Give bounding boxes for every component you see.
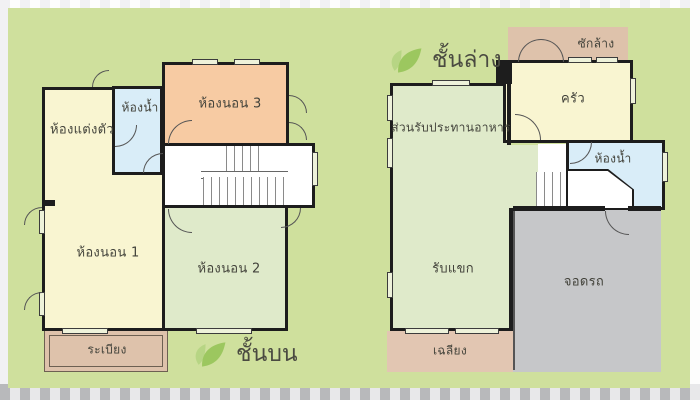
window — [234, 59, 260, 65]
room-label-bedroom2: ห้องนอน 2 — [197, 258, 260, 279]
floor-title-lower: ชั้นล่าง — [386, 42, 502, 78]
room-label-laundry: ซักล้าง — [578, 35, 615, 54]
room-label-porch: เฉลียง — [433, 342, 467, 361]
window — [455, 328, 499, 334]
room-label-bedroom3: ห้องนอน 3 — [198, 93, 261, 114]
room-label-carpark: จอดรถ — [564, 271, 604, 292]
room-label-bedroom1: ห้องนอน 1 — [76, 242, 139, 263]
leaf-icon — [190, 340, 228, 369]
room-label-balcony: ระเบียง — [87, 341, 126, 360]
window — [405, 328, 449, 334]
wall-stub — [42, 200, 55, 206]
window — [192, 59, 218, 65]
floor-title-upper-text: ชั้นบน — [236, 336, 298, 372]
wall-carpark-top-left — [513, 206, 605, 211]
window — [62, 328, 108, 334]
room-label-bathroom-lower: ห้องน้ำ — [594, 150, 631, 169]
room-label-bathroom-upper: ห้องน้ำ — [121, 99, 158, 118]
window — [196, 328, 252, 334]
window — [596, 57, 618, 63]
stairs-upper-flight — [226, 146, 262, 171]
window — [568, 57, 592, 63]
window — [312, 152, 318, 186]
stairs-lower-flight — [203, 177, 288, 205]
floor-plan-canvas: ห้องแต่งตัว ห้องน้ำ ห้องนอน 3 ห้องนอน 1 … — [0, 0, 700, 400]
window — [630, 78, 636, 104]
room-label-living: รับแขก — [432, 258, 474, 279]
window — [387, 272, 393, 298]
wall-carpark-top-right — [628, 206, 661, 211]
window — [662, 152, 668, 182]
room-label-dressing: ห้องแต่งตัว — [50, 119, 114, 140]
room-label-dining: ส่วนรับประทานอาหาร — [391, 119, 511, 138]
window — [387, 95, 393, 121]
carpark-edge-line — [513, 210, 515, 370]
window — [432, 80, 470, 86]
room-label-kitchen: ครัว — [561, 88, 585, 109]
floor-title-lower-text: ชั้นล่าง — [432, 42, 502, 78]
leaf-icon — [386, 46, 424, 75]
window — [387, 138, 393, 168]
floor-title-upper: ชั้นบน — [190, 336, 298, 372]
wall-living-carpark — [509, 208, 513, 331]
open-plan-fill — [505, 145, 539, 208]
